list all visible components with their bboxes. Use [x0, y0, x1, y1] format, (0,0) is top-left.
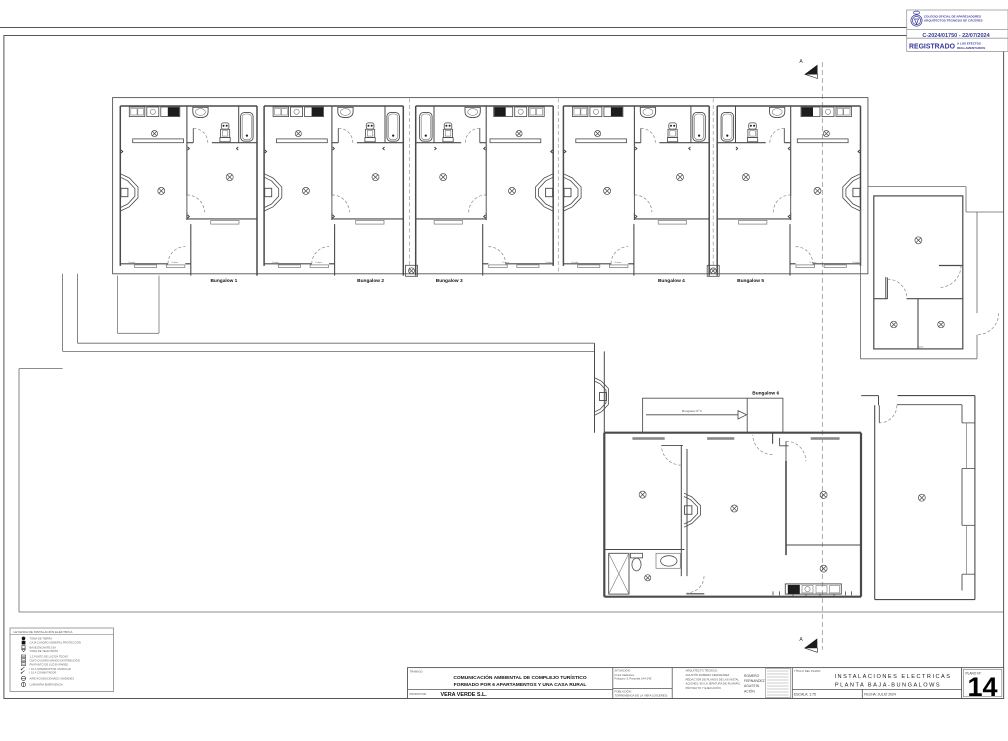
svg-text:REGISTRADO: REGISTRADO: [909, 43, 956, 50]
svg-text:Bungalow 4: Bungalow 4: [658, 278, 685, 284]
svg-text:Bungalow 3: Bungalow 3: [436, 278, 463, 284]
svg-text:Bungalow Nº 6: Bungalow Nº 6: [682, 409, 702, 413]
svg-text:ROMERO: ROMERO: [744, 674, 760, 678]
svg-text:FECHA: JULIO 2024: FECHA: JULIO 2024: [864, 692, 896, 696]
svg-text:LEYENDA DE INSTALACIÓN ELÉCTRI: LEYENDA DE INSTALACIÓN ELÉCTRICA: [14, 629, 74, 634]
svg-text:AIRE ACONDICIONADO UNIDADES: AIRE ACONDICIONADO UNIDADES: [30, 677, 75, 681]
svg-text:REGLAMENTARIOS: REGLAMENTARIOS: [957, 46, 985, 50]
svg-text:VERA VERDE S.L.: VERA VERDE S.L.: [441, 692, 488, 698]
svg-text:V. baño: V. baño: [128, 261, 136, 264]
svg-text:LUMINARIA EMERGENCIA: LUMINARIA EMERGENCIA: [30, 683, 64, 687]
svg-text:1,2 PUNTO DE LUZ EN TECHO: 1,2 PUNTO DE LUZ EN TECHO: [30, 655, 69, 659]
svg-text:V. dorm: V. dorm: [810, 262, 817, 264]
svg-text:V. dorm: V. dorm: [171, 262, 178, 264]
svg-text:V. dorm: V. dorm: [315, 262, 322, 264]
svg-text:TRABAJO:: TRABAJO:: [410, 669, 424, 673]
svg-text:TOMA DE TIERRA: TOMA DE TIERRA: [30, 636, 53, 640]
svg-text:INSTALACIONES ELECTRICAS: INSTALACIONES ELECTRICAS: [834, 674, 951, 680]
svg-text:14: 14: [967, 672, 997, 702]
svg-text:PLANTA BAJA-BUNGALOWS: PLANTA BAJA-BUNGALOWS: [835, 682, 941, 688]
svg-text:I 10 A CONMUTADOR: I 10 A CONMUTADOR: [30, 671, 57, 675]
svg-text:AGUSTIN: AGUSTIN: [744, 684, 760, 688]
svg-text:FERNANDEZ: FERNANDEZ: [744, 679, 765, 683]
svg-text:BASE ENCHUFE 16A: BASE ENCHUFE 16A: [30, 646, 57, 650]
svg-text:V. baño: V. baño: [853, 261, 861, 264]
svg-text:V. baño: V. baño: [545, 261, 553, 264]
svg-text:Bungalow 1: Bungalow 1: [210, 278, 237, 284]
svg-text:Polígono 3, Parcelas 144-145: Polígono 3, Parcelas 144-145: [615, 677, 652, 681]
svg-text:SITUACIÓN:: SITUACIÓN:: [615, 668, 631, 673]
svg-text:PROYECTO Y EJECUCIÓN: PROYECTO Y EJECUCIÓN: [686, 685, 721, 690]
svg-text:TÍTULO DEL PLANO:: TÍTULO DEL PLANO:: [794, 669, 821, 673]
svg-text:FORMADO POR 6 APARTAMENTOS Y U: FORMADO POR 6 APARTAMENTOS Y UNA CASA RU…: [454, 682, 587, 688]
svg-text:PM PUNTO DE LUZ EN PARED: PM PUNTO DE LUZ EN PARED: [30, 662, 69, 666]
svg-text:Bungalow 2: Bungalow 2: [357, 278, 384, 284]
svg-text:V. baño: V. baño: [571, 261, 579, 264]
svg-text:V. baño: V. baño: [272, 261, 280, 264]
svg-text:baño: baño: [919, 346, 925, 349]
svg-text:V. dorm: V. dorm: [502, 262, 509, 264]
svg-text:V. dorm: V. dorm: [614, 262, 621, 264]
svg-text:Bungalow 5: Bungalow 5: [737, 278, 764, 284]
svg-text:TORREMENGA DE LA VERA (CÁCERES: TORREMENGA DE LA VERA (CÁCERES): [615, 693, 668, 697]
svg-text:C-2024/01750 - 22/07/2024: C-2024/01750 - 22/07/2024: [922, 33, 990, 39]
svg-text:ARQUITECTOS TÉCNICOS DE CÁCERE: ARQUITECTOS TÉCNICOS DE CÁCERES: [924, 18, 983, 23]
svg-text:ESCALA: 1:75: ESCALA: 1:75: [794, 692, 816, 696]
svg-text:Bungalow 6: Bungalow 6: [752, 390, 779, 396]
svg-text:PROMOTOR:: PROMOTOR:: [410, 692, 427, 696]
svg-text:ARQUITECTO TÉCNICO:: ARQUITECTO TÉCNICO:: [686, 668, 719, 673]
svg-text:I 10 A INTERRUPTOR UNIPOLAR: I 10 A INTERRUPTOR UNIPOLAR: [30, 667, 71, 671]
svg-text:ACIÓN: ACIÓN: [744, 688, 755, 693]
